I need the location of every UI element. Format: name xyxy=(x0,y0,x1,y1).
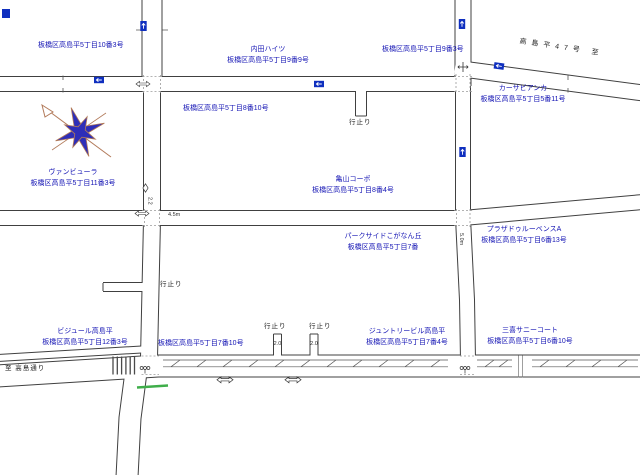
building-name: パークサイドこがなん丘 xyxy=(320,232,446,243)
building-address: 板橋区高島平5丁目8番4号 xyxy=(290,186,416,197)
road-width-mark: 4.5m xyxy=(168,212,181,218)
address-label-5-7-10: 板橋区高島平5丁目7番10号 xyxy=(158,340,244,348)
building-name: ヴァンビューラ xyxy=(10,168,136,179)
dead-end-label: 行止り xyxy=(349,119,372,126)
building-name: 内田ハイツ xyxy=(205,45,331,56)
building-address: 板橋区高島平5丁目7番4号 xyxy=(344,338,470,349)
two-way-arrow-icon xyxy=(285,377,301,383)
road-width-mark: 2.0 xyxy=(310,341,318,347)
building-address: 板橋区高島平5丁目11番3号 xyxy=(10,179,136,190)
building-label-uchida-heights: 内田ハイツ 板橋区高島平5丁目9番9号 xyxy=(205,45,331,66)
building-address: 板橋区高島平5丁目6番10号 xyxy=(467,337,593,348)
address-label-5-10-3: 板橋区高島平5丁目10番3号 xyxy=(38,42,124,50)
building-name: ビジュール高島平 xyxy=(22,327,148,338)
one-way-sign-icon xyxy=(459,19,465,29)
one-way-sign-icon xyxy=(94,77,104,83)
building-label-van-viewla: ヴァンビューラ 板橋区高島平5丁目11番3号 xyxy=(10,168,136,189)
residential-map: 4.5m 5.0m 2.0 2.0 2.2 板橋区高島平5丁目10番3号 内田ハ… xyxy=(0,0,640,475)
road-width-mark: 2.0 xyxy=(274,341,282,347)
map-edge-sign-fragment xyxy=(2,9,10,18)
building-name: カーサビアンカ xyxy=(460,84,586,95)
building-address: 板橋区高島平5丁目12番3号 xyxy=(22,338,148,349)
building-address: 板橋区高島平5丁目9番9号 xyxy=(205,56,331,67)
one-way-sign-icon xyxy=(314,81,324,87)
dead-end-label: 行止り xyxy=(309,323,332,330)
compass-rose xyxy=(42,105,111,157)
building-label-sanki-sunny-court: 三喜サニーコート 板橋区高島平5丁目6番10号 xyxy=(467,326,593,347)
address-label-5-8-10: 板橋区高島平5丁目8番10号 xyxy=(183,105,269,113)
building-label-bijule-takashimadaira: ビジュール高島平 板橋区高島平5丁目12番3号 xyxy=(22,327,148,348)
to-takashima-dori-label: 至 高島通り xyxy=(5,365,45,372)
compass-star-inner xyxy=(65,117,96,148)
building-label-kameyama-corpo: 亀山コーポ 板橋区高島平5丁目8番4号 xyxy=(290,175,416,196)
building-name: ジュントリービル高島平 xyxy=(344,327,470,338)
building-address: 板橋区高島平5丁目7番 xyxy=(320,243,446,254)
north-arrowhead-icon xyxy=(42,105,53,117)
building-label-casa-bianca: カーサビアンカ 板橋区高島平5丁目5番11号 xyxy=(460,84,586,105)
one-way-sign-icon xyxy=(459,147,465,157)
dead-end-label: 行止り xyxy=(264,323,287,330)
road-width-mark: 2.2 xyxy=(147,197,153,205)
address-label-5-9-3: 板橋区高島平5丁目9番3号 xyxy=(382,46,464,54)
building-name: 三喜サニーコート xyxy=(467,326,593,337)
one-way-sign-icon xyxy=(140,21,146,31)
building-address: 板橋区高島平5丁目6番13号 xyxy=(461,236,587,247)
building-label-junto-building: ジュントリービル高島平 板橋区高島平5丁目7番4号 xyxy=(344,327,470,348)
building-name: プラザドゥルーベンスA xyxy=(461,225,587,236)
building-label-parkside: パークサイドこがなん丘 板橋区高島平5丁目7番 xyxy=(320,232,446,253)
two-way-arrow-icon xyxy=(217,377,233,383)
building-name: 亀山コーポ xyxy=(290,175,416,186)
dead-end-label: 行止り xyxy=(160,281,183,288)
building-label-plaza-de-rubens-a: プラザドゥルーベンスA 板橋区高島平5丁目6番13号 xyxy=(461,225,587,246)
building-address: 板橋区高島平5丁目5番11号 xyxy=(460,95,586,106)
